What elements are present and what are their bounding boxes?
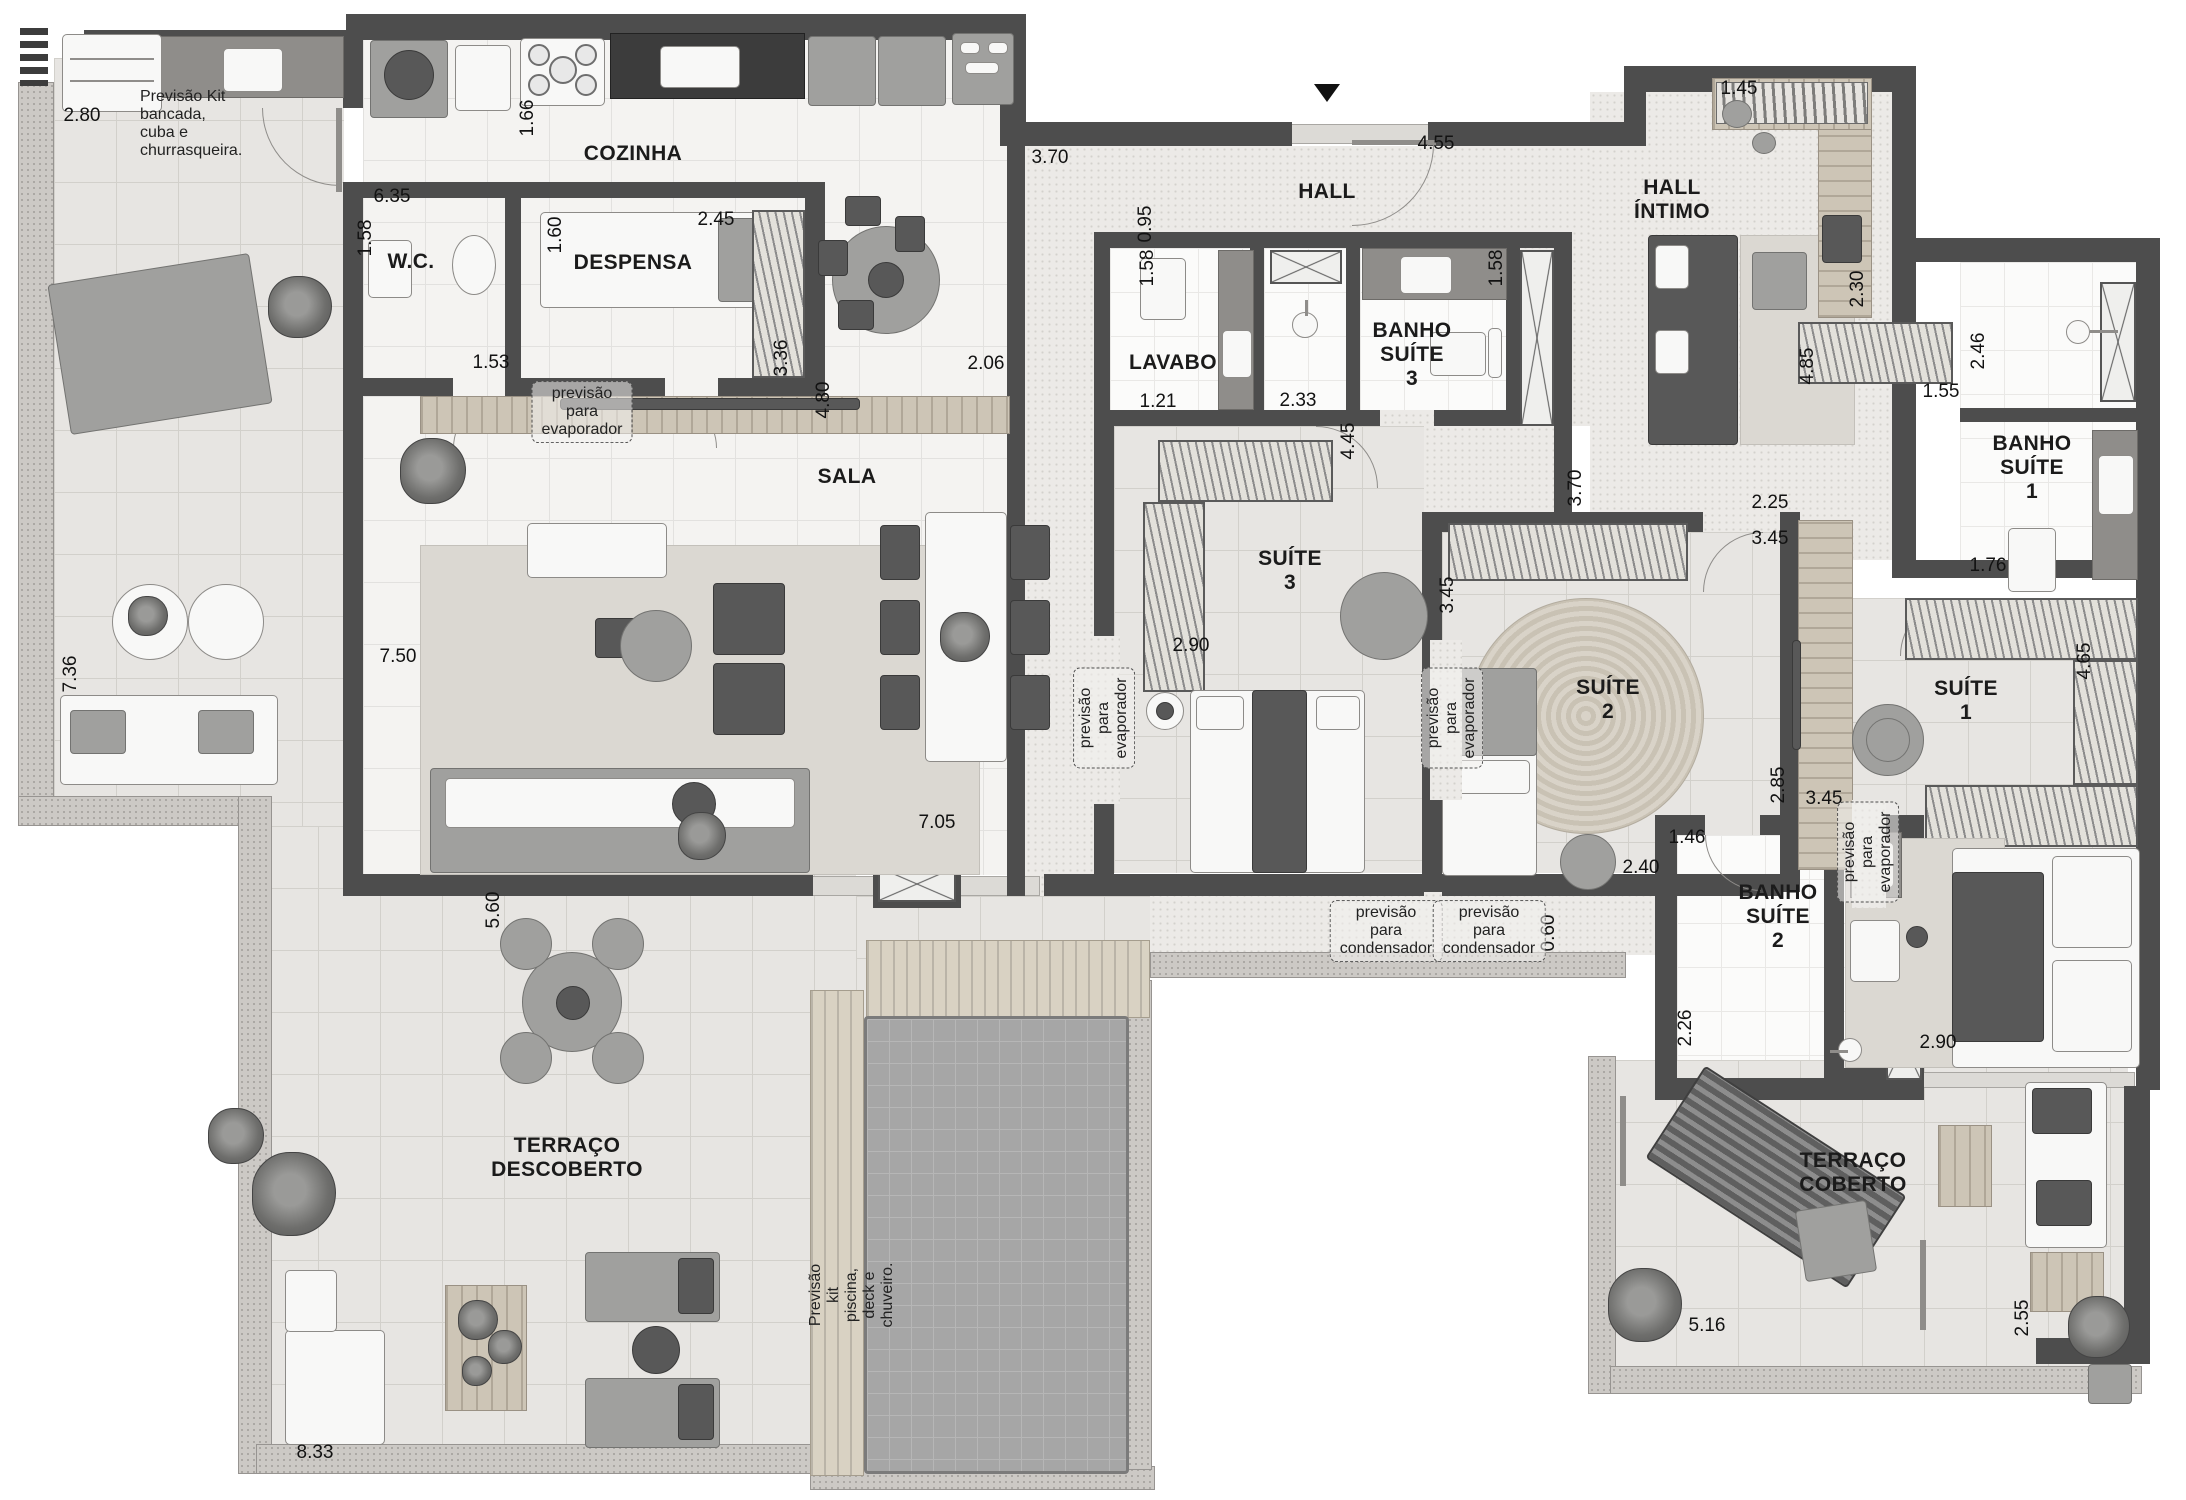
plan-shape — [1938, 1125, 1992, 1207]
dimension-label: 2.06 — [968, 353, 1005, 375]
dimension-label: 1.60 — [545, 217, 567, 254]
plan-shape — [18, 796, 270, 826]
plan-shape — [713, 583, 785, 655]
plan-shape — [1196, 696, 1244, 730]
plan-shape — [1722, 100, 1752, 128]
plan-shape — [1920, 1240, 1926, 1330]
plan-shape — [818, 240, 848, 276]
wall — [343, 378, 453, 396]
plan-shape — [1795, 1200, 1877, 1282]
plan-shape — [895, 216, 925, 252]
plan-shape — [1655, 330, 1689, 374]
plan-shape — [1010, 525, 1050, 580]
plan-shape — [1400, 256, 1452, 294]
plan-shape — [988, 42, 1008, 54]
room-label-cozinha: COZINHA — [584, 142, 682, 166]
dimension-label: 2.40 — [1623, 857, 1660, 879]
wall — [1024, 122, 1292, 146]
wall — [1094, 232, 1572, 248]
plan-shape — [384, 50, 434, 100]
annotation-evaporador-2: previsão para evaporador — [1073, 668, 1135, 769]
plan-shape — [878, 36, 946, 106]
wall — [1892, 238, 2160, 262]
plan-shape — [455, 45, 511, 111]
plan-shape — [880, 600, 920, 655]
dimension-label: 4.45 — [1338, 423, 1360, 460]
dimension-label: 8.33 — [297, 1442, 334, 1464]
room-label-suite-3: SUÍTE 3 — [1258, 547, 1322, 595]
plan-shape — [1010, 600, 1050, 655]
dimension-label: 1.66 — [517, 100, 539, 137]
annotation-evaporador-1: previsão para evaporador — [532, 381, 633, 443]
plan-shape — [1752, 252, 1807, 310]
plan-shape — [500, 918, 552, 970]
plan-shape — [256, 1444, 816, 1474]
plan-shape — [70, 58, 154, 60]
plan-shape — [1340, 572, 1428, 660]
dimension-label: 1.21 — [1140, 391, 1177, 413]
dimension-label: 7.36 — [60, 656, 82, 693]
plan-shape — [1830, 1050, 1848, 1053]
plan-shape — [223, 48, 283, 92]
dimension-label: 1.58 — [1137, 250, 1159, 287]
room-label-hall: HALL — [1298, 180, 1356, 204]
plan-shape — [18, 82, 54, 826]
dimension-label: 1.55 — [1923, 381, 1960, 403]
plan-shape — [1588, 1056, 1616, 1394]
plan-shape — [575, 44, 597, 66]
plan-shape — [660, 46, 740, 88]
dimension-label: 1.45 — [1721, 78, 1758, 100]
plan-shape — [1560, 834, 1616, 890]
plan-shape — [2066, 320, 2090, 344]
plan-shape — [500, 1032, 552, 1084]
plan-shape — [1158, 440, 1333, 502]
annotation-kit-bancada: Previsão Kit bancada, cuba e churrasquei… — [140, 88, 242, 160]
dimension-label: 2.90 — [1920, 1032, 1957, 1054]
plan-shape — [1655, 245, 1689, 289]
plan-shape — [592, 1032, 644, 1084]
annotation-kit-piscina: Previsão kit piscina, deck e chuveiro. — [807, 1263, 897, 1328]
dimension-label: 4.55 — [1418, 133, 1455, 155]
dimension-label: 2.85 — [1768, 767, 1790, 804]
dimension-label: 3.36 — [771, 340, 793, 377]
plan-shape — [285, 1270, 337, 1332]
plan-shape — [198, 710, 254, 754]
plan-shape — [1798, 322, 1953, 384]
plan-shape — [866, 940, 1150, 1018]
room-label-suite-2: SUÍTE 2 — [1576, 676, 1640, 724]
plan-shape — [1488, 328, 1502, 378]
plan-shape — [838, 300, 874, 330]
dimension-label: 7.05 — [919, 812, 956, 834]
room-label-hall-intimo: HALL ÍNTIMO — [1634, 176, 1710, 224]
plan-shape — [70, 80, 154, 82]
room-label-lavabo: LAVABO — [1129, 351, 1217, 375]
dimension-label: 2.80 — [64, 105, 101, 127]
plan-shape — [1270, 250, 1342, 284]
plan-shape — [1025, 426, 1094, 896]
dimension-label: 3.70 — [1032, 147, 1069, 169]
dimension-label: 1.46 — [1669, 827, 1706, 849]
dimension-label: 4.85 — [1797, 348, 1819, 385]
room-label-banho-suite-3: BANHO SUÍTE 3 — [1373, 319, 1452, 391]
dimension-label: 2.26 — [1675, 1010, 1697, 1047]
plan-shape — [70, 710, 126, 754]
plan-shape — [864, 1016, 1129, 1474]
plan-shape — [549, 56, 577, 84]
wall — [343, 182, 825, 198]
plan-shape — [880, 525, 920, 580]
plan-shape — [1520, 250, 1554, 426]
plan-shape — [1952, 872, 2044, 1042]
plan-shape — [1822, 215, 1862, 263]
plan-shape — [845, 196, 881, 226]
annotation-condensador-2: previsão para condensador — [1433, 900, 1546, 962]
wall — [1960, 408, 2136, 422]
plan-shape — [1448, 523, 1688, 581]
plan-shape — [445, 778, 795, 828]
plan-shape — [2052, 856, 2132, 948]
plan-shape — [527, 523, 667, 578]
plan-shape — [528, 44, 550, 66]
plan-shape — [1620, 1096, 1626, 1186]
plan-shape — [960, 42, 980, 54]
plan-shape — [528, 74, 550, 96]
plan-shape — [868, 262, 904, 298]
plan-shape — [2100, 282, 2136, 402]
dimension-label: 4.80 — [813, 382, 835, 419]
wall — [1094, 248, 1110, 426]
floor-plan: COZINHAW.C.DESPENSAHALLHALL ÍNTIMOLAVABO… — [0, 0, 2186, 1500]
plan-shape — [592, 918, 644, 970]
plan-shape — [575, 74, 597, 96]
dimension-label: 5.60 — [483, 892, 505, 929]
dimension-label: 4.65 — [2074, 643, 2096, 680]
plan-shape — [47, 253, 272, 435]
wall — [1624, 92, 1646, 146]
dimension-label: 0.95 — [1135, 206, 1157, 243]
room-label-suite-1: SUÍTE 1 — [1934, 677, 1998, 725]
dimension-label: 3.70 — [1565, 470, 1587, 507]
plan-shape — [1866, 718, 1910, 762]
plan-shape — [1850, 920, 1900, 982]
dimension-label: 1.58 — [355, 220, 377, 257]
plan-shape — [678, 1384, 714, 1440]
plan-shape — [2098, 455, 2134, 515]
wall — [1007, 146, 1025, 896]
dimension-label: 2.33 — [1280, 390, 1317, 412]
plan-shape — [678, 1258, 714, 1314]
plan-shape — [1906, 926, 1928, 948]
room-label-terraco-coberto: TERRAÇO COBERTO — [1799, 1149, 1906, 1197]
dimension-label: 2.90 — [1173, 635, 1210, 657]
wall — [343, 188, 363, 896]
plan-shape — [452, 235, 496, 295]
dimension-label: 2.45 — [698, 209, 735, 231]
plan-shape — [1610, 1366, 2142, 1394]
plan-shape — [810, 990, 864, 1476]
plan-shape — [1905, 598, 2138, 660]
room-label-banho-suite-2: BANHO SUÍTE 2 — [1739, 881, 1818, 953]
plan-shape — [556, 986, 590, 1020]
room-label-wc: W.C. — [387, 250, 434, 274]
plan-shape — [285, 1330, 385, 1445]
room-label-terraco-descoberto: TERRAÇO DESCOBERTO — [491, 1134, 643, 1182]
dimension-label: 6.35 — [374, 186, 411, 208]
wall — [1892, 262, 1916, 560]
plan-shape — [1010, 675, 1050, 730]
dimension-label: 2.30 — [1847, 271, 1869, 308]
plan-shape — [2090, 330, 2118, 333]
annotation-evaporador-3: previsão para evaporador — [1421, 668, 1483, 769]
dimension-label: 1.76 — [1970, 555, 2007, 577]
plan-shape — [1156, 702, 1174, 720]
wall — [1506, 248, 1520, 426]
wall — [343, 874, 813, 896]
plan-shape — [1792, 640, 1801, 750]
plan-shape — [713, 663, 785, 735]
plan-shape — [188, 584, 264, 660]
dimension-label: 1.58 — [1486, 250, 1508, 287]
wall — [805, 198, 825, 396]
dimension-label: 3.45 — [1752, 528, 1789, 550]
room-label-banho-suite-1: BANHO SUÍTE 1 — [1993, 432, 2072, 504]
plan-shape — [1752, 132, 1776, 154]
dimension-label: 2.46 — [1968, 333, 1990, 370]
plan-shape — [2088, 1364, 2132, 1404]
dimension-label: 7.50 — [380, 646, 417, 668]
plan-shape — [2036, 1180, 2092, 1226]
wall — [343, 36, 363, 108]
dimension-label: 3.45 — [1437, 577, 1459, 614]
plan-shape — [1252, 690, 1307, 873]
plan-shape — [2032, 1088, 2092, 1134]
room-label-despensa: DESPENSA — [574, 251, 693, 275]
plan-shape — [1316, 696, 1360, 730]
annotation-evaporador-4: previsão para evaporador — [1837, 802, 1899, 903]
dimension-label: 1.53 — [473, 352, 510, 374]
plan-shape — [1143, 502, 1205, 692]
plan-shape — [808, 36, 876, 106]
wall — [718, 378, 825, 396]
wall — [1892, 66, 1916, 262]
room-label-sala: SALA — [818, 465, 877, 489]
wall — [1428, 122, 1628, 146]
plan-shape — [620, 610, 692, 682]
dimension-label: 5.16 — [1689, 1315, 1726, 1337]
plan-shape — [20, 28, 48, 86]
wall — [1346, 248, 1360, 426]
dimension-label: 2.55 — [2012, 1300, 2034, 1337]
plan-shape — [1305, 300, 1308, 316]
annotation-condensador-1: previsão para condensador — [1330, 900, 1443, 962]
plan-shape — [1222, 330, 1252, 378]
plan-shape — [632, 1326, 680, 1374]
plan-shape — [2052, 960, 2132, 1052]
dimension-label: 2.25 — [1752, 492, 1789, 514]
plan-shape — [2008, 528, 2056, 592]
plan-shape — [1424, 426, 1556, 512]
entrance-arrow-icon — [1314, 84, 1340, 102]
plan-shape — [880, 675, 920, 730]
plan-shape — [965, 62, 999, 74]
wall — [1044, 874, 1424, 896]
plan-shape — [1126, 980, 1152, 1470]
